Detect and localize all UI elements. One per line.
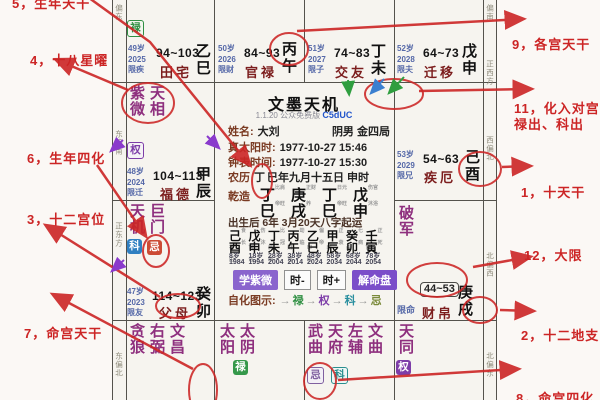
annotation-label-7: 7，命宫天干 [24,323,102,342]
jiaoyou-limit-info: 51岁2027限子 [308,44,326,76]
qianyi-age-range: 64~73 [423,46,459,60]
tianzhai-name: 田宅 [160,62,192,81]
compass-right-2: 正西方 [486,60,494,86]
legend-arrow-icon: → [306,295,317,307]
hai-stars: 天同 [397,323,414,355]
compass-right-5: 北偏东 [486,352,494,378]
fude-limit-info: 48岁2024限迁 [127,167,145,199]
fude-stars: 紫微天相 [128,85,165,117]
tianzhai-stem-branch: 乙巳 [195,43,212,77]
compass-left-1: 偏东 [115,4,123,21]
caibo-stars: 破军 [397,205,414,237]
jie-age-range: 54~63 [423,152,459,166]
guanlu-stem-branch: 丙午 [281,41,298,75]
zihua-legend: 自化图示: →禄 →权 →科 →忌 [228,292,382,308]
gender-bureau: 阴男 金四局 [332,123,390,139]
jie-stem-branch: 己酉 [464,149,481,183]
compass-left-4: 东偏北 [115,352,123,378]
chou-lu-badge: 禄 [233,360,248,375]
jie-name: 疾厄 [424,167,456,186]
ziwei-chart-screenshot: 偏东 东偏南 正东方 东偏北 偏南 正西方 西偏北 北偏西 北偏东 禄 49岁2… [0,0,600,400]
lunar-row: 农历 丁 巳年九月十五日 申时 [228,169,390,185]
zi-ji-badge: 忌 [307,367,324,384]
arrow-xubranch-to-label2 [500,310,532,311]
tianzhai-lu-badge: 禄 [127,20,144,37]
clock-time-row: 钟表时间: 1977-10-27 15:30 [228,154,390,170]
legend-arrow-icon: → [280,295,291,307]
app-version: 1.1.20 公众免费版 C5dUC [214,110,394,121]
time-plus-button[interactable]: 时+ [317,270,346,290]
guanlu-limit-info: 50岁2026限财 [218,44,236,76]
annotation-label-12: 12，大限 [524,245,582,264]
fumu-limit-info: 47岁2023限友 [127,287,145,319]
annotation-label-11-line2: 禄出、科出 [514,114,584,133]
annotation-label-2: 2，十二地支 [521,325,599,344]
jiaoyou-name: 交友 [335,62,367,81]
caibo-name: 财帛 [422,303,454,322]
time-minus-button[interactable]: 时- [284,270,311,290]
zi-stars: 武曲天府左辅文曲 [306,323,383,355]
fude-quan-badge: 权 [127,142,144,159]
compass-right-3: 西偏北 [486,136,494,162]
hai-quan-badge: 权 [396,360,411,375]
annotation-label-9: 9，各宫天干 [512,34,590,53]
version-text: 1.1.20 公众免费版 [256,111,320,120]
qianyi-name: 迁移 [424,62,456,81]
annotation-label-5: 5，生年天干 [12,0,90,12]
name-row: 姓名: 大刘 阴男 金四局 [228,123,390,139]
toolbar: 学紫微 时- 时+ 解命盘 [233,270,397,290]
qianyi-limit-info: 52岁2028限夫 [397,44,415,76]
guanlu-age-range: 84~93 [244,46,280,60]
annotation-label-4: 4，十八星曜 [30,50,108,69]
compass-right-1: 偏南 [486,4,494,21]
guanlu-name: 官禄 [245,62,277,81]
jiaoyou-stem-branch: 丁未 [370,43,387,77]
jiaoyou-age-range: 74~83 [334,46,370,60]
compass-left-2: 东偏南 [115,130,123,156]
zi-ke-badge: 科 [331,367,348,384]
tianzhai-limit-info: 49岁2025限疾 [128,44,146,76]
dayun-years-row: 19841994200420142024203420442054 [229,259,385,266]
fumu-stem-branch: 癸卯 [195,286,212,320]
build-code: C5dUC [322,110,352,120]
arrow-jistem-to-label1 [502,166,529,167]
true-solar-row: 真太阳时: 1977-10-27 15:46 [228,139,390,155]
qianyi-stem-branch: 戊申 [461,43,478,77]
caibo-limit-info: 限命 [397,305,415,316]
lunar-year-stem: 丁 [254,169,265,185]
legend-arrow-icon: → [332,295,343,307]
decode-chart-button[interactable]: 解命盘 [352,270,397,290]
fumu-name: 父母 [159,303,191,322]
annotation-label-8: 8，命宫四化 [516,388,594,400]
jie-limit-info: 53岁2029限兄 [397,150,415,182]
annotation-label-1: 1，十天干 [521,182,585,201]
clock-time: 1977-10-27 15:30 [280,157,367,169]
fumu-ji-badge: 忌 [147,240,162,255]
annotation-label-6: 6，生年四化 [27,148,105,167]
true-solar-time: 1977-10-27 15:46 [280,142,367,154]
fumu-ke-badge: 科 [127,239,142,254]
caibo-stem-branch: 庚戌 [457,284,474,318]
learn-ziwei-button[interactable]: 学紫微 [233,270,278,290]
annotation-label-3: 3，十二宫位 [27,209,105,228]
fude-name: 福德 [160,184,192,203]
compass-right-4: 北偏西 [486,252,494,278]
fumu-stars: 天机巨门 [128,203,165,235]
person-name: 大刘 [258,123,280,139]
compass-left-3: 正东方 [115,222,123,248]
tianzhai-age-range: 94~103 [156,46,199,60]
lunar-date: 巳年九月十五日 申时 [267,169,369,185]
legend-arrow-icon: → [358,295,369,307]
chou-stars: 太阳太阴 [218,323,255,355]
yin-stars: 贪狼右弼文昌 [128,323,185,355]
fude-stem-branch: 甲辰 [195,166,212,200]
caibo-daxian-range: 44~53 [420,282,459,297]
